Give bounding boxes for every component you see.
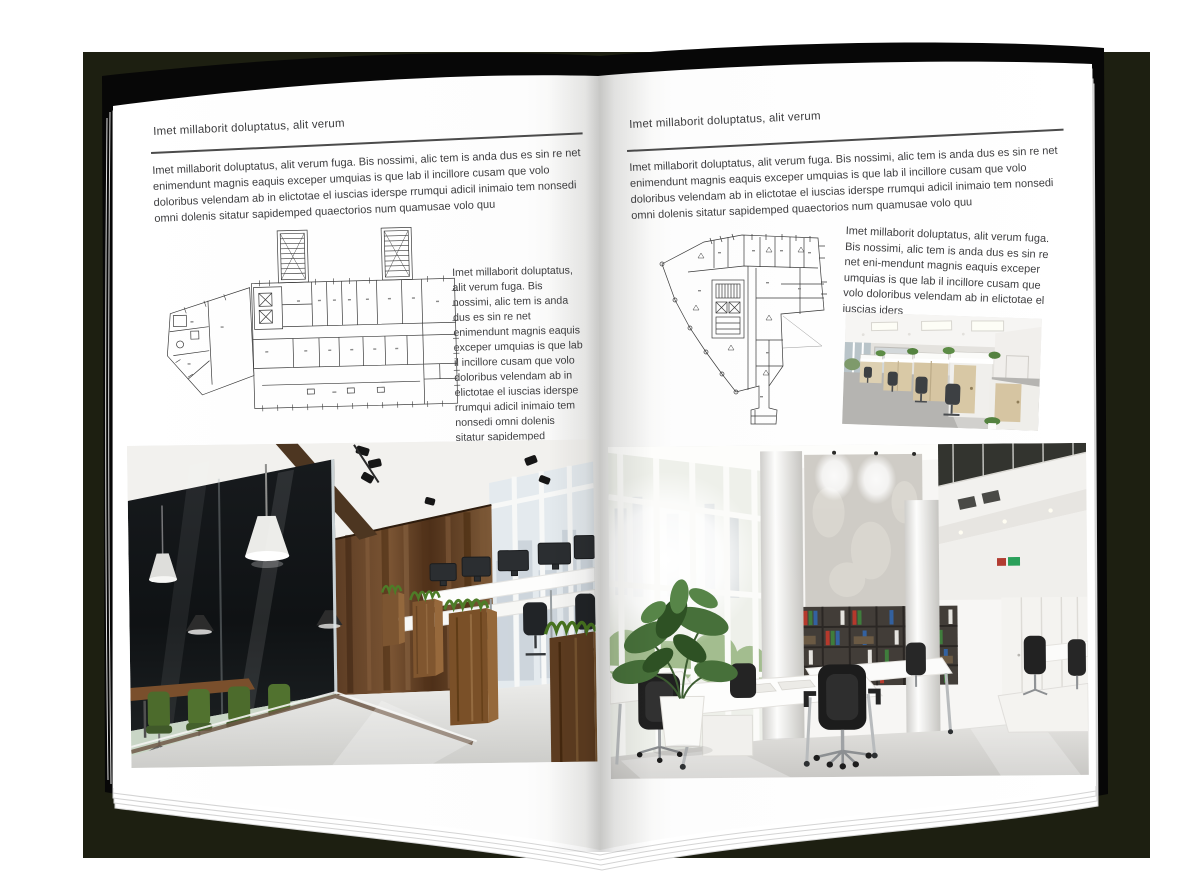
photo-dark-office (127, 439, 597, 767)
floor-plan-left (158, 220, 463, 428)
exit-sign (1008, 557, 1020, 566)
magazine-mockup: Imet millaborit doluptatus, alit verum I… (0, 0, 1200, 891)
photo-white-office (608, 443, 1089, 779)
mezzanine (938, 443, 1087, 600)
floor-plan-right (648, 220, 844, 425)
right-caption: Imet millaborit doluptatus, alit verum f… (842, 224, 1064, 326)
column-back (904, 500, 940, 739)
photo-cubicle-office (842, 312, 1042, 431)
